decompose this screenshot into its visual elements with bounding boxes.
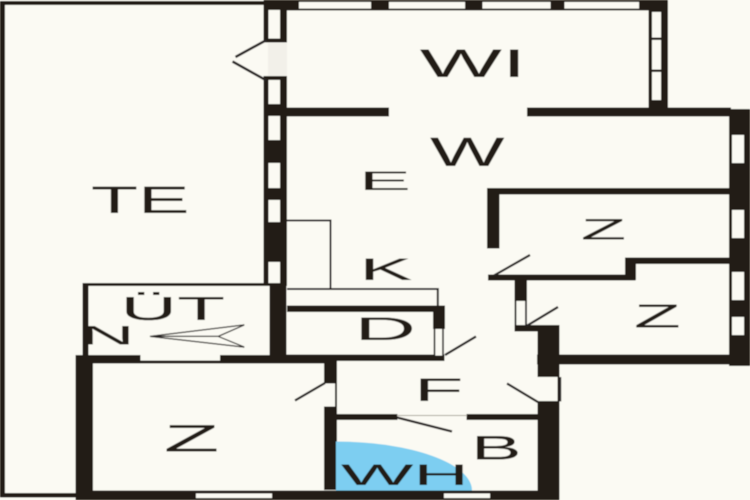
svg-text:TE: TE: [91, 179, 190, 221]
svg-text:Z: Z: [634, 297, 681, 335]
svg-text:K: K: [359, 251, 412, 286]
svg-text:E: E: [359, 167, 411, 196]
svg-text:Z: Z: [164, 417, 220, 460]
svg-text:WH: WH: [341, 458, 469, 491]
svg-text:Z: Z: [581, 213, 626, 246]
svg-text:F: F: [414, 372, 464, 408]
svg-text:N: N: [80, 321, 135, 350]
svg-text:W: W: [430, 130, 506, 175]
svg-text:ÜT: ÜT: [120, 290, 225, 327]
svg-text:B: B: [471, 429, 522, 467]
svg-text:D: D: [354, 311, 416, 347]
svg-text:WI: WI: [420, 42, 527, 86]
